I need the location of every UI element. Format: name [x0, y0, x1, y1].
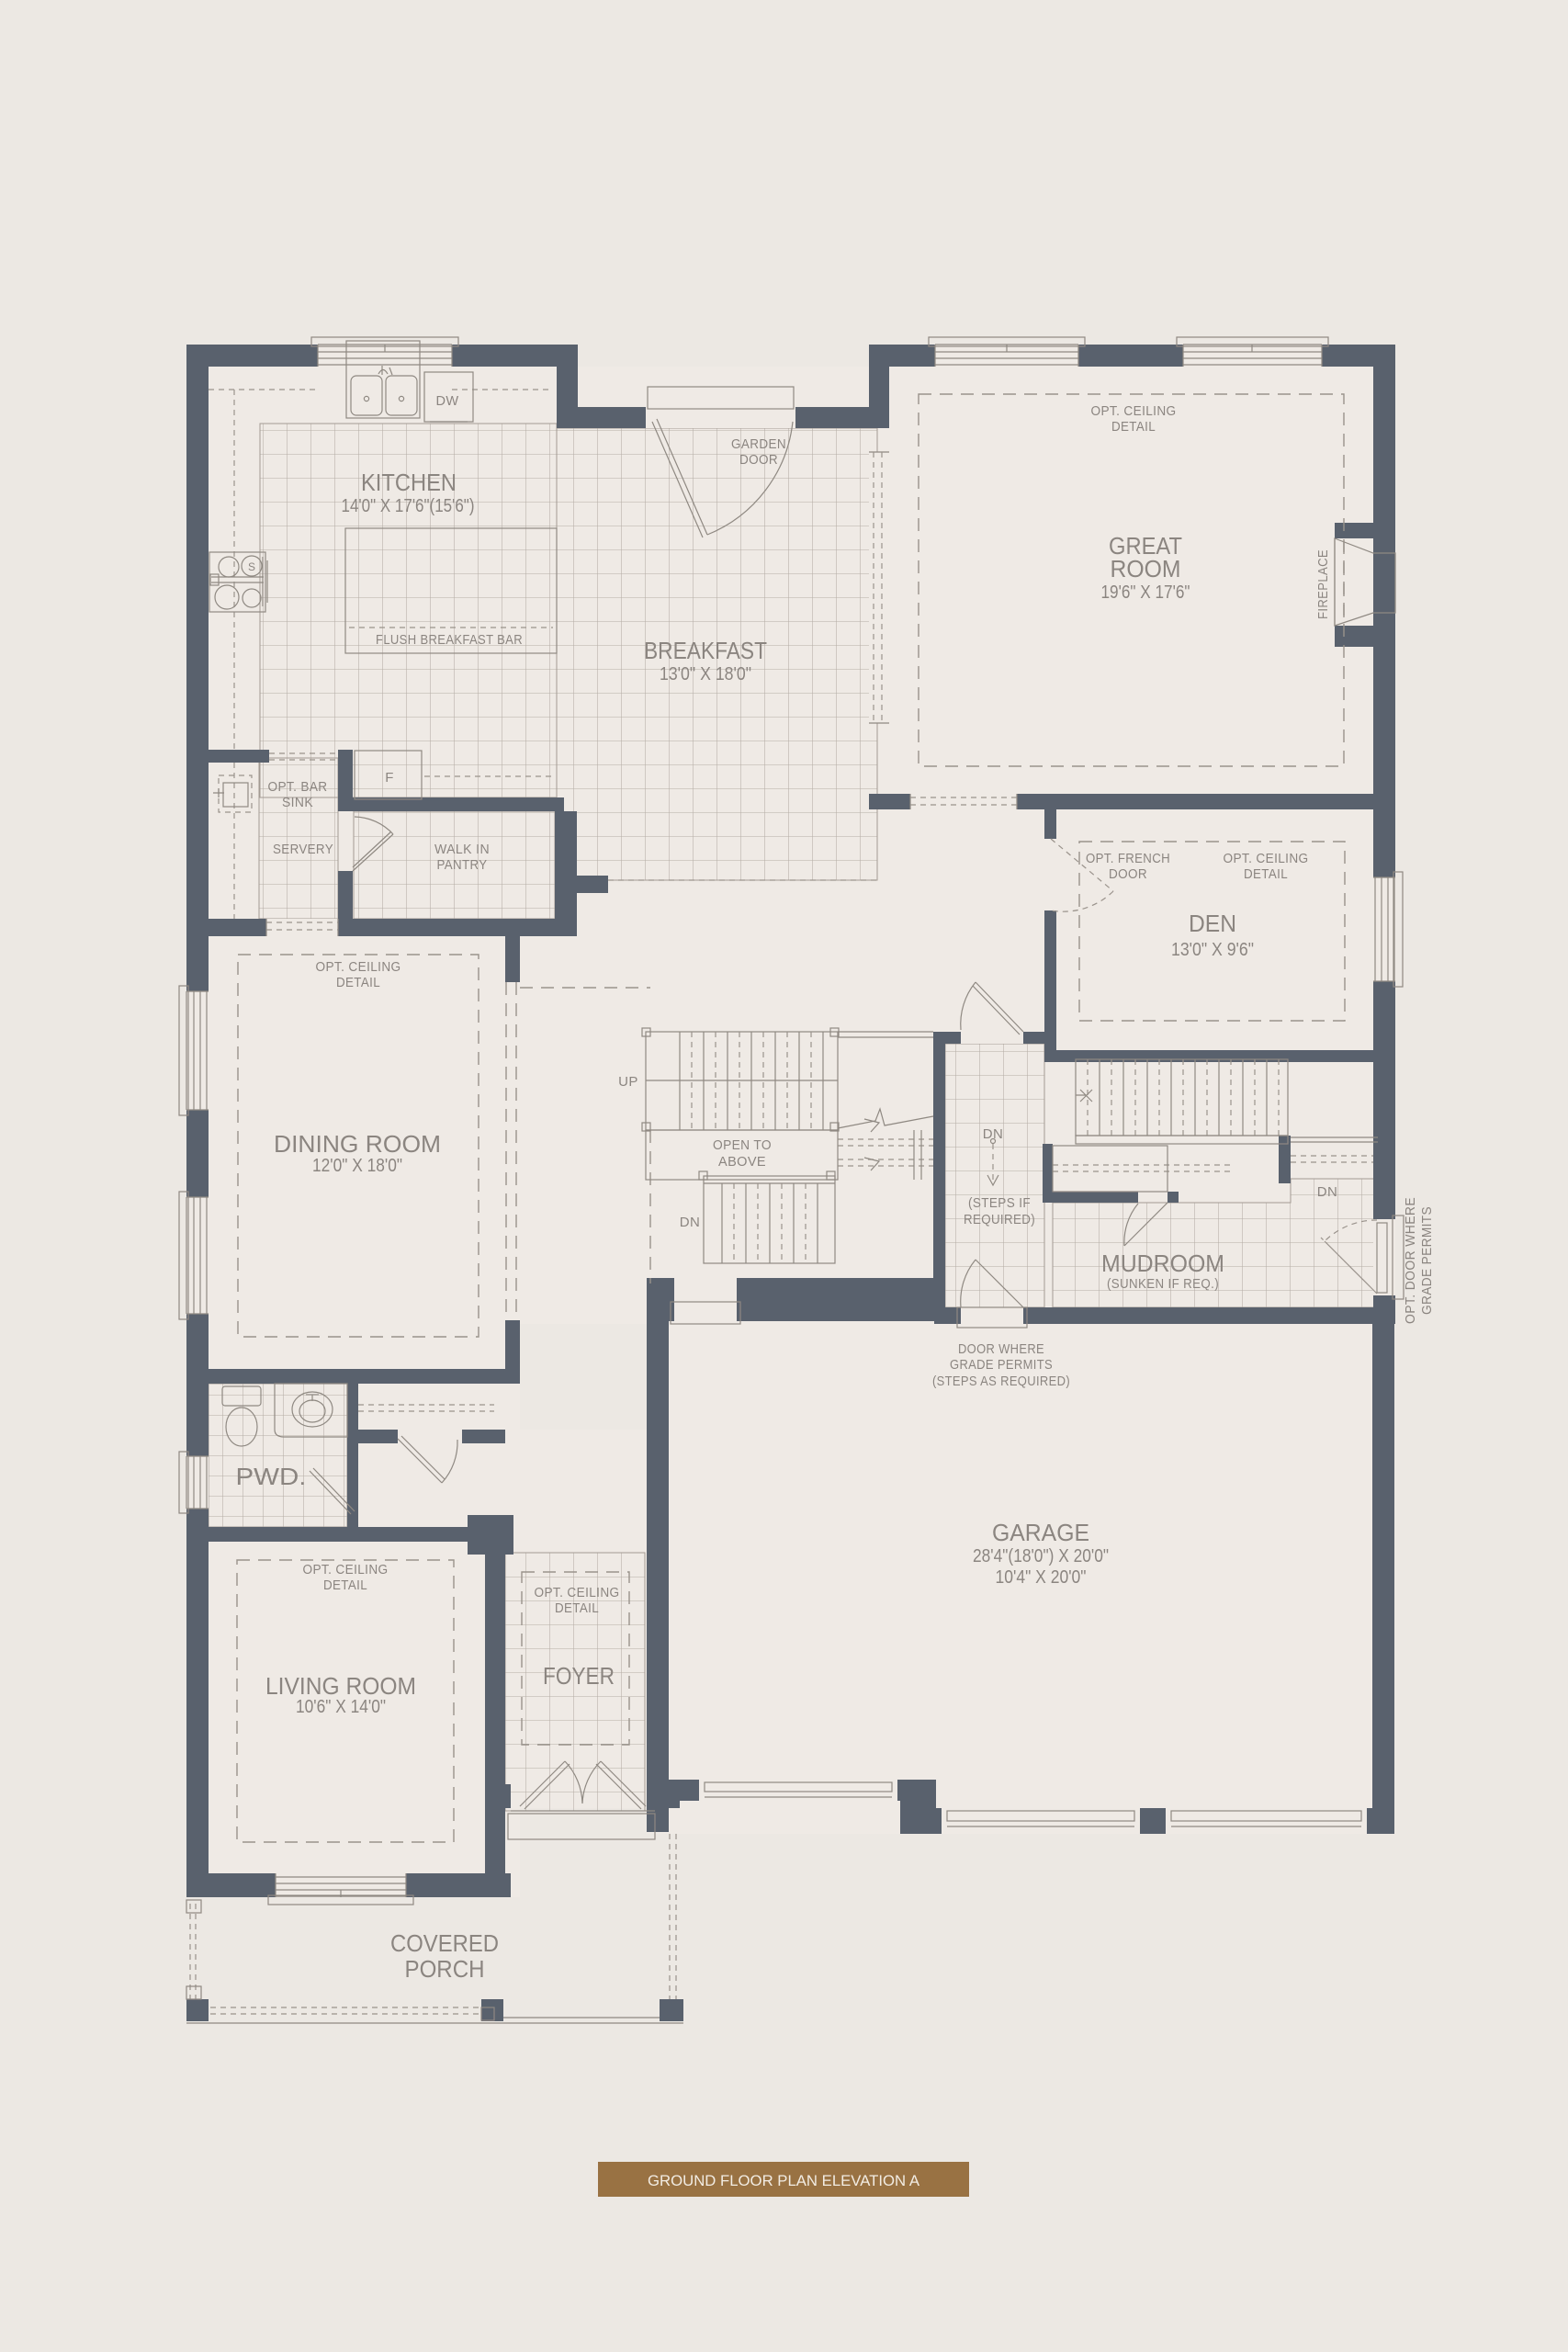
svg-text:BREAKFAST: BREAKFAST — [644, 637, 767, 664]
svg-text:OPT. DOOR WHERE: OPT. DOOR WHERE — [1403, 1197, 1418, 1324]
svg-text:FOYER: FOYER — [543, 1662, 615, 1690]
svg-text:OPT. FRENCH: OPT. FRENCH — [1086, 851, 1170, 866]
svg-text:FLUSH BREAKFAST BAR: FLUSH BREAKFAST BAR — [376, 632, 523, 648]
svg-text:OPT. CEILING: OPT. CEILING — [303, 1562, 389, 1577]
svg-text:GARAGE: GARAGE — [992, 1519, 1089, 1546]
svg-text:DETAIL: DETAIL — [1111, 419, 1156, 435]
svg-text:KITCHEN: KITCHEN — [361, 469, 457, 496]
svg-text:(STEPS AS REQUIRED): (STEPS AS REQUIRED) — [932, 1374, 1070, 1389]
svg-text:DOOR: DOOR — [739, 452, 778, 468]
svg-text:WALK IN: WALK IN — [434, 842, 490, 857]
svg-text:FIREPLACE: FIREPLACE — [1315, 549, 1331, 619]
svg-text:DETAIL: DETAIL — [336, 975, 380, 990]
svg-text:DN: DN — [983, 1126, 1003, 1142]
svg-text:GRADE PERMITS: GRADE PERMITS — [950, 1357, 1053, 1373]
svg-text:UP: UP — [618, 1074, 638, 1090]
svg-text:28'4"(18'0") X 20'0": 28'4"(18'0") X 20'0" — [973, 1546, 1109, 1566]
svg-text:GARDEN: GARDEN — [731, 436, 786, 452]
svg-text:DETAIL: DETAIL — [1244, 866, 1288, 882]
svg-text:GROUND FLOOR PLAN ELEVATION A: GROUND FLOOR PLAN ELEVATION A — [648, 2173, 919, 2189]
svg-text:13'0" X 18'0": 13'0" X 18'0" — [660, 664, 751, 684]
svg-text:DOOR WHERE: DOOR WHERE — [958, 1341, 1044, 1357]
svg-text:14'0" X 17'6"(15'6"): 14'0" X 17'6"(15'6") — [342, 496, 475, 516]
svg-text:SERVERY: SERVERY — [273, 842, 333, 857]
svg-text:OPT. CEILING: OPT. CEILING — [1224, 851, 1309, 866]
svg-text:DN: DN — [680, 1215, 700, 1230]
svg-text:OPT. CEILING: OPT. CEILING — [535, 1585, 620, 1600]
svg-text:10'6" X 14'0": 10'6" X 14'0" — [296, 1697, 386, 1717]
svg-text:PANTRY: PANTRY — [437, 857, 488, 873]
svg-text:DINING ROOM: DINING ROOM — [274, 1130, 441, 1158]
svg-text:DETAIL: DETAIL — [323, 1577, 367, 1593]
svg-text:COVERED: COVERED — [390, 1929, 499, 1957]
svg-text:10'4" X 20'0": 10'4" X 20'0" — [996, 1567, 1087, 1588]
svg-text:19'6" X 17'6": 19'6" X 17'6" — [1101, 582, 1190, 603]
svg-text:S: S — [248, 560, 255, 573]
svg-text:OPT. CEILING: OPT. CEILING — [316, 959, 401, 975]
svg-text:ROOM: ROOM — [1111, 555, 1181, 582]
svg-text:(STEPS IF: (STEPS IF — [968, 1195, 1031, 1211]
svg-text:OPT. BAR: OPT. BAR — [268, 779, 328, 795]
svg-text:SINK: SINK — [282, 795, 313, 810]
svg-text:DOOR: DOOR — [1109, 866, 1147, 882]
svg-text:PORCH: PORCH — [405, 1955, 485, 1983]
svg-text:LIVING ROOM: LIVING ROOM — [265, 1672, 416, 1700]
svg-text:PWD.: PWD. — [236, 1463, 307, 1490]
svg-text:REQUIRED): REQUIRED) — [964, 1212, 1035, 1227]
svg-text:DW: DW — [436, 393, 459, 409]
svg-text:(SUNKEN IF REQ.): (SUNKEN IF REQ.) — [1107, 1276, 1219, 1292]
svg-text:F: F — [385, 770, 394, 786]
svg-text:GRADE PERMITS: GRADE PERMITS — [1419, 1206, 1435, 1315]
svg-text:DN: DN — [1317, 1184, 1337, 1200]
svg-text:12'0" X 18'0": 12'0" X 18'0" — [312, 1156, 402, 1176]
svg-text:ABOVE: ABOVE — [718, 1154, 766, 1170]
svg-text:OPT. CEILING: OPT. CEILING — [1091, 403, 1177, 419]
svg-text:MUDROOM: MUDROOM — [1101, 1249, 1224, 1277]
svg-text:13'0" X 9'6": 13'0" X 9'6" — [1171, 940, 1254, 960]
svg-text:DETAIL: DETAIL — [555, 1600, 599, 1616]
svg-text:OPEN TO: OPEN TO — [713, 1137, 772, 1153]
svg-text:DEN: DEN — [1189, 910, 1236, 937]
